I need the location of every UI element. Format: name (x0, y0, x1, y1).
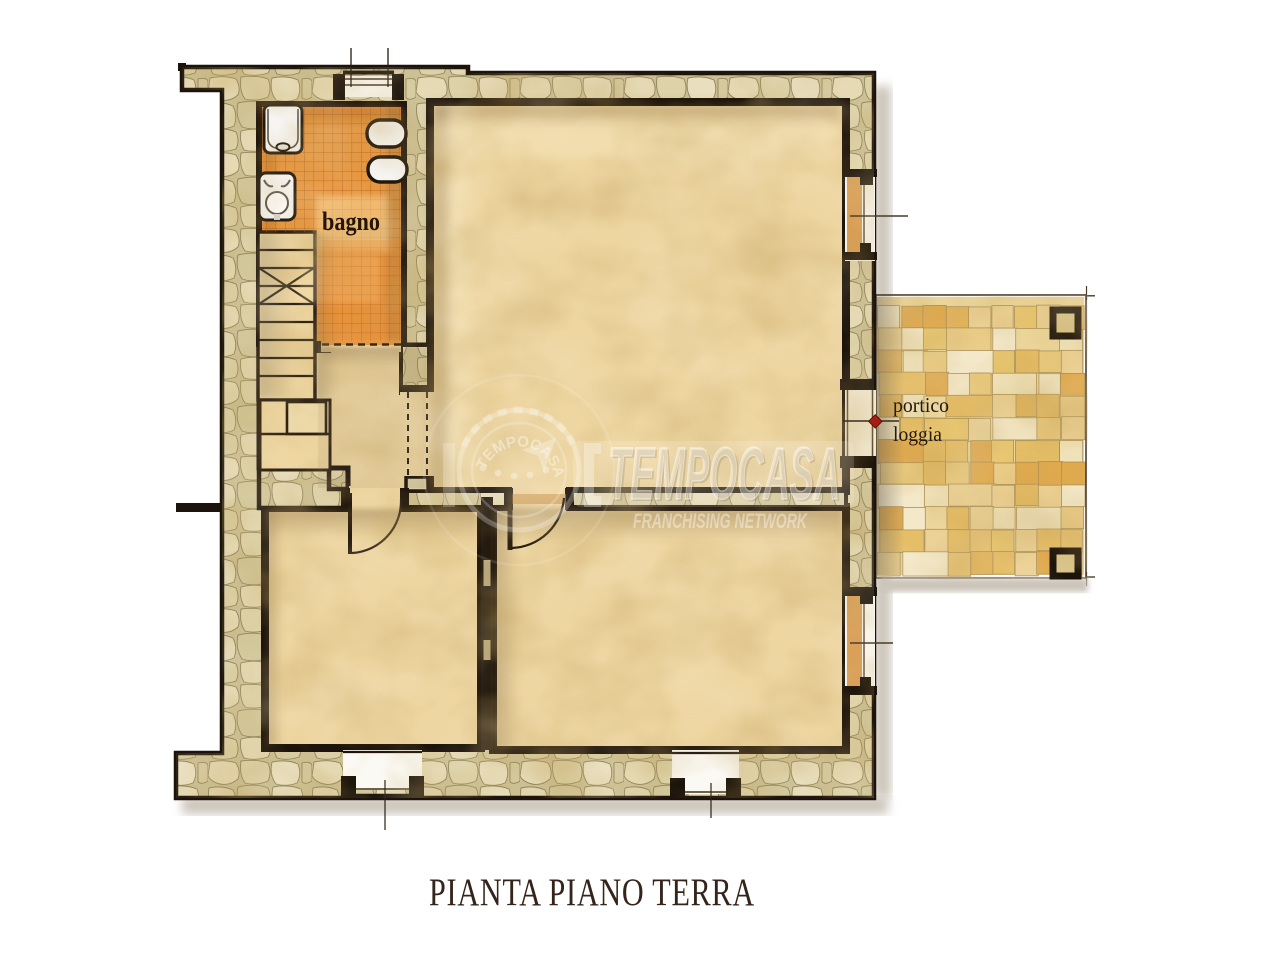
svg-text:loggia: loggia (893, 422, 943, 446)
svg-text:TEMPOCASA: TEMPOCASA (608, 432, 840, 515)
svg-text:bagno: bagno (322, 207, 380, 236)
svg-text:PIANTA PIANO TERRA: PIANTA PIANO TERRA (429, 871, 755, 914)
svg-text:portico: portico (893, 393, 949, 417)
svg-text:FRANCHISING NETWORK: FRANCHISING NETWORK (633, 510, 808, 533)
